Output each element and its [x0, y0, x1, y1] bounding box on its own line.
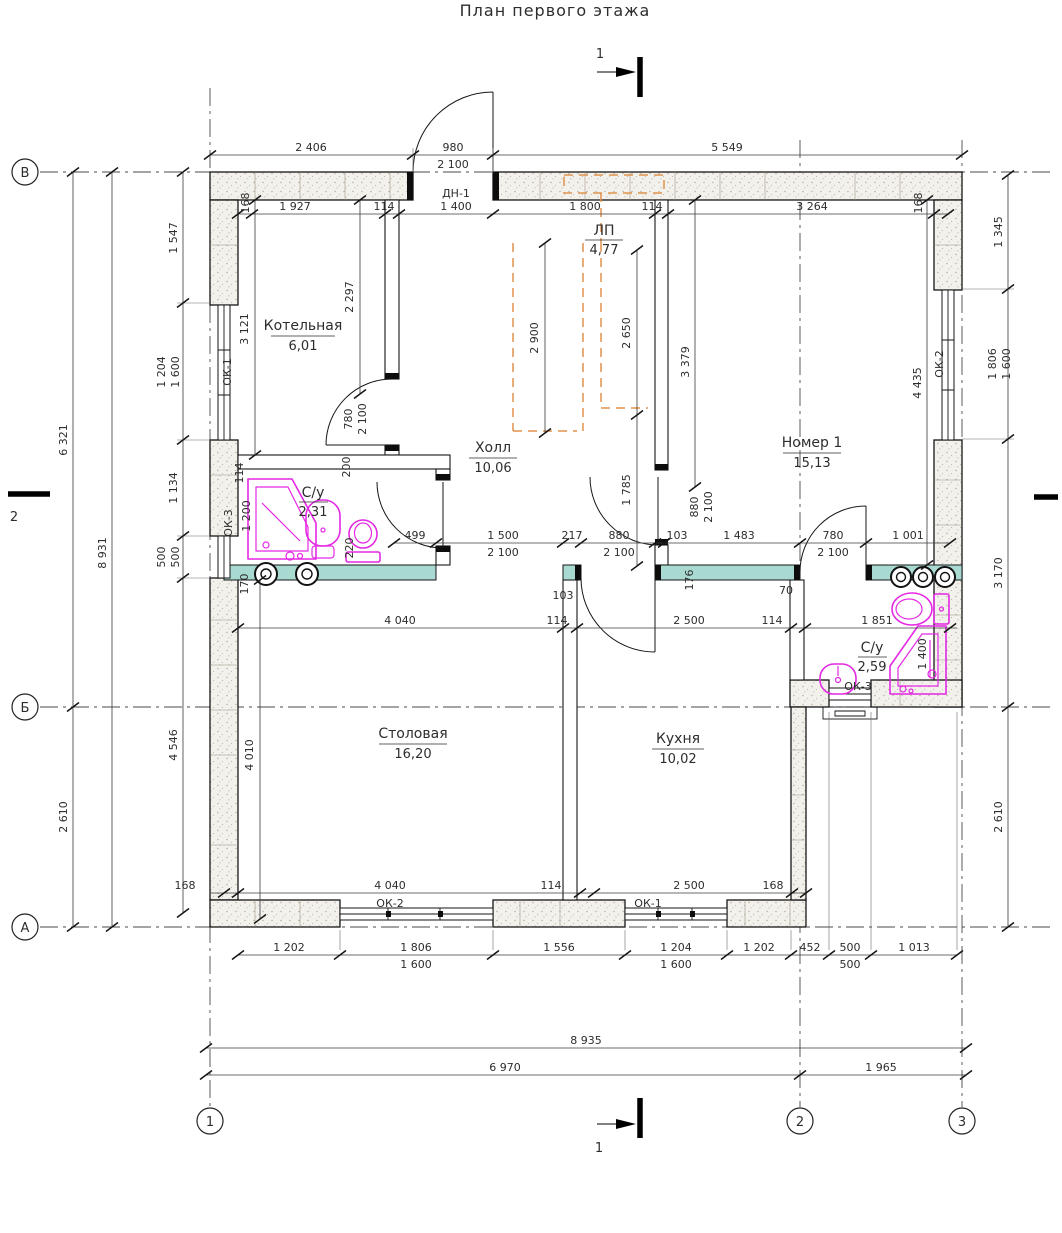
svg-text:Котельная: Котельная	[264, 318, 343, 334]
dim-label: 1 400	[440, 200, 472, 213]
dim-label: 1 013	[898, 941, 930, 954]
dim-label: 1 800	[569, 200, 601, 213]
dim-label: 6 970	[489, 1061, 521, 1074]
room-stolovaya: Столовая16,20	[378, 726, 447, 762]
dim-label: 6 321	[57, 424, 70, 456]
dim-label: 500	[155, 547, 168, 568]
teal-walls	[224, 565, 962, 580]
dim-label: 4 040	[384, 614, 416, 627]
dim-label: 200	[340, 457, 353, 478]
dim-label: 3 264	[796, 200, 828, 213]
dim-label: 1 600	[169, 356, 182, 388]
dim-label: 103	[667, 529, 688, 542]
window-ok3-left	[218, 536, 230, 578]
room-su2: С/у2,59	[858, 640, 887, 675]
svg-text:Столовая: Столовая	[378, 726, 447, 742]
window-tag-ok2: ОК-2	[933, 350, 946, 377]
dim-label: 1 806	[986, 348, 999, 380]
axis-bubbles: В Б А 1 2 3	[12, 159, 975, 1134]
svg-text:1: 1	[595, 1141, 603, 1156]
dim-label: 4 040	[374, 879, 406, 892]
svg-text:2,59: 2,59	[858, 660, 887, 675]
svg-text:1: 1	[596, 47, 604, 62]
dimension-labels: 2 406 980 2 100 5 549 168 1 927 114 1 40…	[57, 141, 1013, 1074]
dim-label: 2 100	[356, 403, 369, 435]
dim-label: 2 900	[528, 322, 541, 354]
dim-label: 1 785	[620, 474, 633, 506]
svg-text:4,77: 4,77	[590, 243, 619, 258]
dim-label: 1 600	[660, 958, 692, 971]
floor-plan-page: 2 406 980 2 100 5 549 168 1 927 114 1 40…	[0, 0, 1062, 1229]
svg-text:10,06: 10,06	[474, 461, 511, 476]
dim-label: 103	[553, 589, 574, 602]
dim-label: 4 010	[243, 739, 256, 771]
dim-label: 2 610	[57, 801, 70, 833]
dim-label: 1 345	[992, 216, 1005, 248]
dim-label: 1 965	[865, 1061, 897, 1074]
section-mark-left: 2	[8, 494, 50, 525]
dim-label: 114	[547, 614, 568, 627]
dim-label: 8 935	[570, 1034, 602, 1047]
dim-label: 500	[169, 547, 182, 568]
dim-label: 980	[443, 141, 464, 154]
dim-label: 1 500	[487, 529, 519, 542]
dim-label: 168	[239, 193, 252, 214]
dim-label: 2 500	[673, 614, 705, 627]
dim-label: 114	[541, 879, 562, 892]
dim-label: 452	[800, 941, 821, 954]
dim-label: 780	[342, 409, 355, 430]
dim-label: 2 406	[295, 141, 327, 154]
dim-label: 1 001	[892, 529, 924, 542]
room-kotelnaya: Котельная6,01	[264, 318, 343, 354]
dim-label: 1 202	[273, 941, 305, 954]
dim-label: 70	[779, 584, 793, 597]
dim-label: 176	[683, 570, 696, 591]
dim-label: 500	[840, 958, 861, 971]
dim-label: 1 204	[660, 941, 692, 954]
window-tag-ok3: ОК-3	[222, 509, 235, 536]
exterior-walls	[210, 172, 962, 927]
dim-label: 2 100	[437, 158, 469, 171]
dim-label: 8 931	[96, 537, 109, 569]
room-hall: Холл10,06	[469, 440, 517, 476]
axis-label-a: А	[21, 921, 30, 936]
dim-label: 1 927	[279, 200, 311, 213]
dim-label: 1 600	[1000, 348, 1013, 380]
dim-label: 780	[823, 529, 844, 542]
dim-label: 1 483	[723, 529, 755, 542]
dim-label: 1 600	[400, 958, 432, 971]
dim-label: 2 650	[620, 317, 633, 349]
dim-label: 3 379	[679, 346, 692, 378]
axis-label-v: В	[21, 166, 30, 181]
window-tag-ok3: ОК-3	[844, 680, 871, 693]
dim-label: 4 435	[911, 367, 924, 399]
door-tag-dn1: ДН-1	[442, 187, 470, 200]
dim-label: 1 806	[400, 941, 432, 954]
dim-label: 880	[688, 497, 701, 518]
dim-label: 168	[175, 879, 196, 892]
room-stair: ЛП4,77	[585, 223, 623, 258]
svg-text:Кухня: Кухня	[656, 731, 700, 747]
section-mark-top: 1	[596, 47, 640, 97]
svg-text:ЛП: ЛП	[593, 223, 614, 239]
dim-label: 114	[762, 614, 783, 627]
svg-text:15,13: 15,13	[793, 456, 830, 471]
axis-label-1: 1	[206, 1115, 214, 1130]
axis-label-b: Б	[21, 701, 30, 716]
svg-text:2: 2	[10, 510, 18, 525]
window-ok2-bottom	[340, 908, 493, 920]
dim-label: 170	[238, 574, 251, 595]
dim-label: 1 556	[543, 941, 575, 954]
svg-text:С/у: С/у	[861, 640, 884, 656]
dim-label: 1 202	[743, 941, 775, 954]
section-mark-bottom: 1	[595, 1098, 640, 1156]
window-tag-ok1: ОК-1	[221, 358, 234, 385]
dim-label: 499	[405, 529, 426, 542]
dim-label: 220	[343, 538, 356, 559]
dim-label: 500	[840, 941, 861, 954]
dim-label: 880	[609, 529, 630, 542]
floor-plan-canvas: 2 406 980 2 100 5 549 168 1 927 114 1 40…	[0, 0, 1062, 1229]
dim-label: 1 134	[167, 472, 180, 504]
dim-label: 2 100	[603, 546, 635, 559]
dim-label: 168	[912, 193, 925, 214]
svg-text:2,31: 2,31	[299, 505, 328, 520]
axis-label-3: 3	[958, 1115, 966, 1130]
dim-label: 217	[562, 529, 583, 542]
dim-label: 114	[374, 200, 395, 213]
dim-label: 1 200	[240, 500, 253, 532]
svg-text:16,20: 16,20	[394, 747, 431, 762]
dim-label: 114	[233, 463, 246, 484]
interior-partitions	[238, 200, 804, 900]
dim-label: 1 204	[155, 356, 168, 388]
window-tag-ok1: ОК-1	[634, 897, 661, 910]
dim-label: 3 170	[992, 557, 1005, 589]
dim-label: 1 851	[861, 614, 893, 627]
svg-text:6,01: 6,01	[289, 339, 318, 354]
svg-text:Холл: Холл	[475, 440, 511, 456]
dim-label: 1 547	[167, 222, 180, 254]
dim-label: 2 100	[487, 546, 519, 559]
dim-label: 2 500	[673, 879, 705, 892]
dim-label: 2 100	[702, 491, 715, 523]
dim-label: 2 610	[992, 801, 1005, 833]
svg-text:Номер 1: Номер 1	[782, 435, 843, 451]
window-tag-ok2: ОК-2	[376, 897, 403, 910]
svg-text:С/у: С/у	[302, 485, 325, 501]
svg-text:10,02: 10,02	[659, 752, 696, 767]
dim-label: 2 297	[343, 281, 356, 313]
dim-label: 3 121	[238, 313, 251, 345]
door-kuhnya	[581, 578, 655, 652]
dim-label: 4 546	[167, 729, 180, 761]
page-title: План первого этажа	[460, 1, 651, 20]
dim-label: 114	[642, 200, 663, 213]
door-jambs	[385, 172, 872, 580]
room-kuhnya: Кухня10,02	[652, 731, 704, 767]
dim-label: 168	[763, 879, 784, 892]
dim-label: 1 400	[916, 638, 929, 670]
dim-label: 2 100	[817, 546, 849, 559]
room-nomer1: Номер 115,13	[782, 435, 843, 471]
stair-outline	[513, 175, 664, 431]
dim-label: 5 549	[711, 141, 743, 154]
axis-label-2: 2	[796, 1115, 804, 1130]
